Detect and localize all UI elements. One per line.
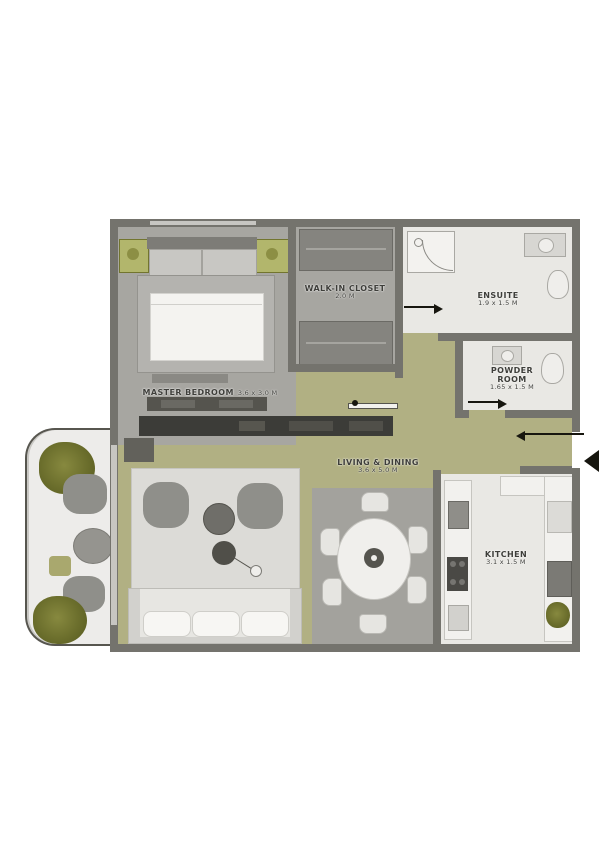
entry-direction-icon: [584, 450, 599, 472]
pendant-lamp-icon: [364, 548, 384, 568]
wall-kitchen-left: [433, 470, 441, 644]
pendant-center: [371, 555, 377, 561]
sofa-armrest: [290, 589, 301, 643]
balcony-table: [73, 528, 113, 564]
vanity-sink: [524, 233, 566, 257]
door-handle: [352, 400, 358, 406]
sofa-cushion: [143, 611, 191, 637]
powder-sink: [492, 346, 522, 365]
kitchen-label: KITCHEN 3.1 x 1.5 M: [470, 550, 542, 567]
living-dining-label: LIVING & DINING 3.6 x 5.0 M: [318, 458, 438, 475]
floor-plan: MASTER BEDROOM3.6 x 3.0 M WALK-IN CLOSET…: [0, 0, 613, 867]
console-detail: [239, 421, 265, 431]
window: [150, 221, 256, 225]
dresser-detail: [161, 400, 195, 408]
wardrobe: [299, 229, 393, 271]
master-bedroom-label: MASTER BEDROOM3.6 x 3.0 M: [135, 381, 285, 399]
balcony-cushion: [49, 556, 71, 576]
kitchen-counter-left: [444, 480, 472, 640]
wall-powder-bottom: [505, 410, 572, 418]
sink-icon: [501, 350, 514, 362]
toilet: [547, 270, 569, 299]
tv-console: [139, 416, 393, 436]
plant-icon: [546, 602, 570, 628]
bed-headboard: [147, 237, 257, 249]
fridge: [547, 561, 572, 597]
wall-bedroom-closet: [288, 227, 296, 372]
lamp-icon: [266, 248, 278, 260]
sofa: [128, 588, 302, 644]
dishwasher: [448, 605, 469, 631]
dining-chair: [322, 578, 342, 606]
dresser-detail: [219, 400, 253, 408]
console-detail: [289, 421, 333, 431]
nightstand: [256, 239, 290, 273]
burner-icon: [450, 561, 456, 567]
kitchen-sink: [448, 501, 469, 529]
entry-opening: [572, 432, 580, 468]
sofa-armrest: [129, 589, 140, 643]
sofa-cushion: [192, 611, 240, 637]
sofa-back: [140, 637, 290, 643]
dining-table: [337, 518, 411, 600]
hanging-rail: [306, 248, 386, 250]
bed-pillows: [149, 249, 257, 277]
burner-icon: [459, 561, 465, 567]
lamp-icon: [127, 248, 139, 260]
wardrobe: [299, 321, 393, 367]
dining-chair: [359, 614, 387, 634]
shower: [407, 231, 455, 273]
sink-icon: [538, 238, 554, 253]
bed: [137, 275, 275, 373]
sofa-cushion: [241, 611, 289, 637]
burner-icon: [450, 579, 456, 585]
balcony-sliding-door: [111, 445, 117, 625]
floor-lamp-icon: [250, 565, 262, 577]
wall-closet-bottom: [288, 364, 403, 372]
kitchen-counter-top: [500, 476, 546, 496]
shower-drain-icon: [414, 238, 423, 247]
cabinet: [547, 501, 572, 533]
dining-chair: [407, 576, 427, 604]
dining-chair: [361, 492, 389, 512]
side-table: [124, 438, 154, 462]
shower-door-arc: [422, 240, 453, 271]
wall-kitchen-top: [520, 466, 572, 474]
walk-in-closet-label: WALK-IN CLOSET 2.0 M: [297, 284, 393, 301]
balcony-chair: [63, 474, 107, 514]
ensuite-label: ENSUITE 1.9 x 1.5 M: [458, 291, 538, 308]
wall-ensuite-bottom: [438, 333, 572, 341]
duvet-fold-line: [150, 304, 262, 305]
console-detail: [349, 421, 383, 431]
wall-closet-ensuite: [395, 227, 403, 378]
stove: [447, 557, 468, 591]
nightstand: [119, 239, 149, 273]
coffee-table: [203, 503, 235, 535]
pillow-split: [201, 250, 203, 276]
wall-powder-left: [455, 341, 463, 410]
wall-powder-bottom-stub: [455, 410, 469, 418]
dining-chair: [408, 526, 428, 554]
hanging-rail: [306, 342, 386, 344]
powder-room-label: POWDER ROOM 1.65 x 1.5 M: [478, 366, 546, 392]
side-table-round: [212, 541, 236, 565]
burner-icon: [459, 579, 465, 585]
armchair: [237, 483, 283, 529]
armchair: [143, 482, 189, 528]
plant-icon: [33, 596, 87, 644]
wall-bottom: [110, 644, 580, 652]
